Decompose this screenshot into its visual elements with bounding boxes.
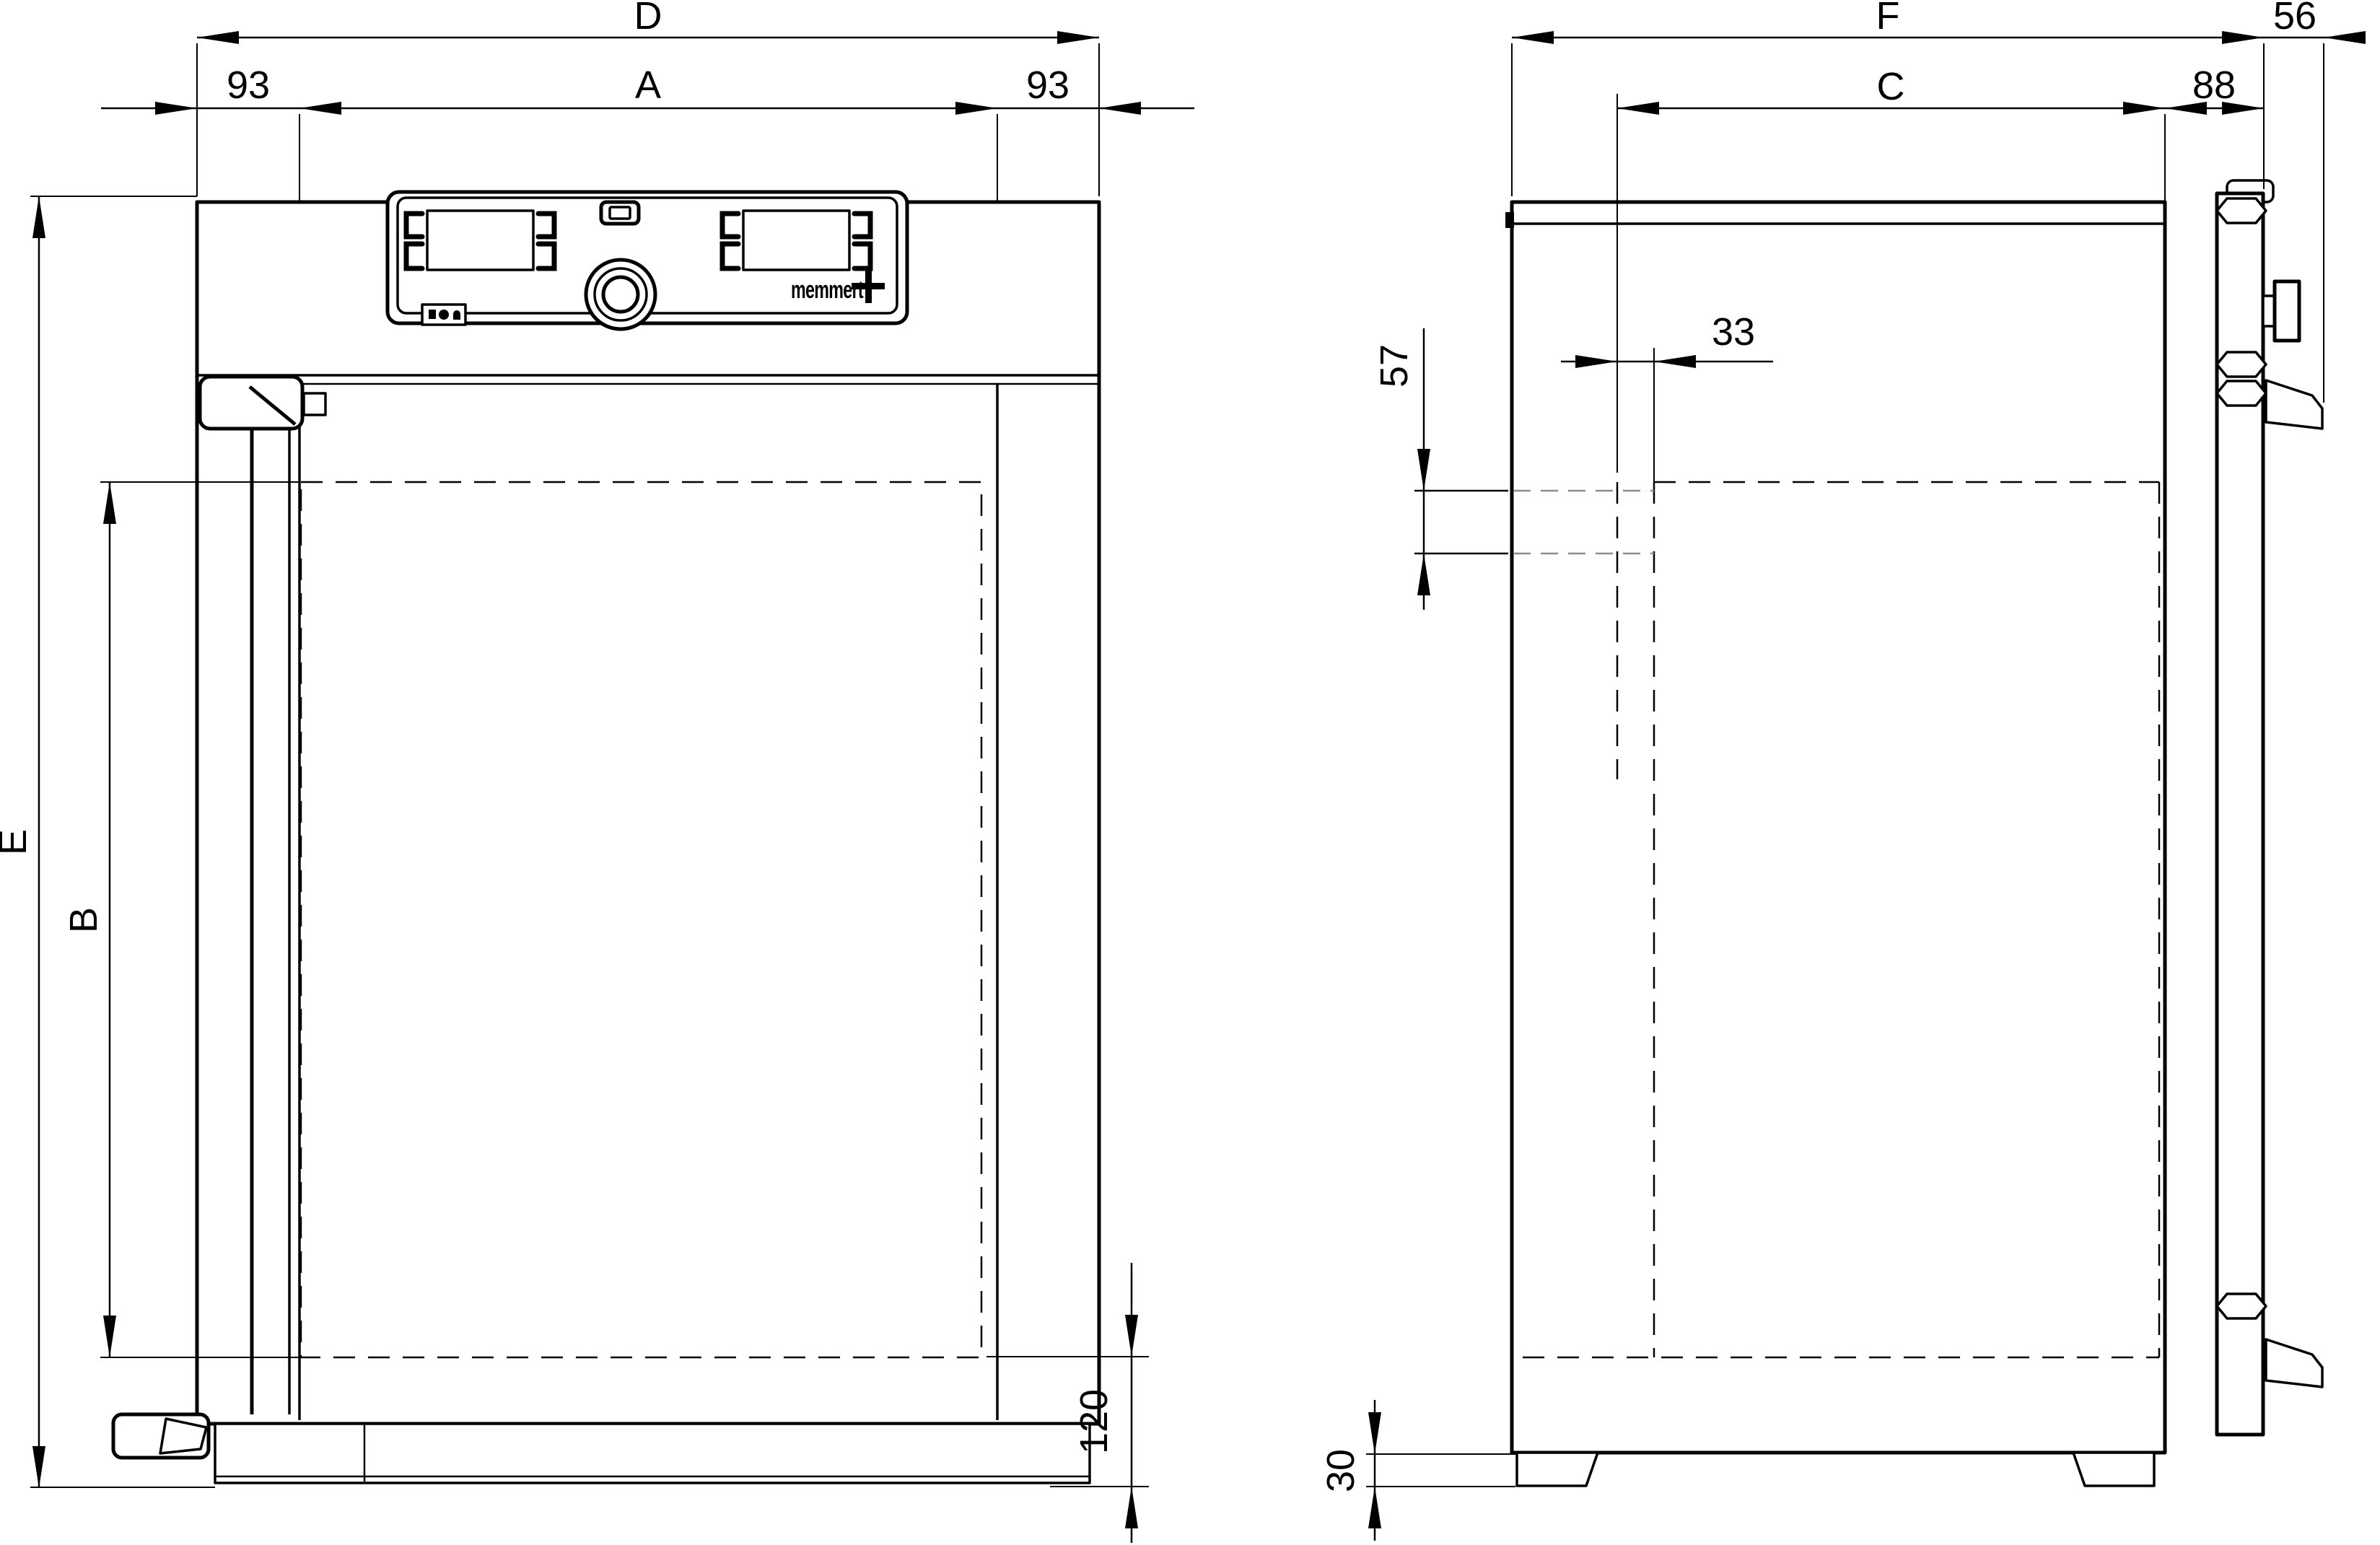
interior-chamber-front-dashed bbox=[301, 482, 981, 1357]
dimension-interior-height-B: B bbox=[62, 482, 299, 1357]
dim-label-30: 30 bbox=[1319, 1449, 1362, 1492]
oven-body-front bbox=[197, 202, 1099, 1424]
dim-label-57: 57 bbox=[1373, 344, 1416, 388]
brand-text: memmert bbox=[791, 276, 863, 304]
dim-label-B: B bbox=[62, 907, 105, 933]
side-view: F 56 C 88 33 57 bbox=[1319, 0, 2366, 1541]
hinge-hex-top bbox=[2217, 198, 2266, 223]
base-plinth bbox=[215, 1424, 1090, 1483]
dimension-base-height-120: 120 bbox=[986, 1263, 1149, 1543]
dimension-top-inset-57: 57 bbox=[1373, 328, 1508, 610]
brand-plus-icon bbox=[852, 283, 885, 289]
dimension-total-height-E: E bbox=[0, 196, 215, 1488]
control-knob bbox=[586, 260, 655, 329]
dimension-door-width-A-with-margins: 93 A 93 bbox=[101, 64, 1194, 202]
hinge-hex bbox=[2217, 352, 2266, 377]
oven-dimension-drawing: memmert D bbox=[0, 0, 2380, 1545]
timer-icon bbox=[439, 310, 449, 320]
display-right bbox=[722, 211, 870, 270]
dim-label-56: 56 bbox=[2273, 0, 2316, 38]
usb-port-icon bbox=[601, 202, 639, 224]
latch-bottom bbox=[2266, 1339, 2322, 1387]
dim-label-D: D bbox=[634, 0, 662, 38]
dim-label-93-right: 93 bbox=[1026, 64, 1069, 107]
door-slab bbox=[2217, 193, 2263, 1435]
setup-icon bbox=[429, 310, 436, 319]
hinge-hex bbox=[2217, 381, 2266, 406]
dim-label-E: E bbox=[0, 829, 35, 855]
dim-label-88: 88 bbox=[2192, 64, 2236, 107]
dimension-interior-depth-C-and-88: C 88 bbox=[1617, 64, 2264, 473]
door-side bbox=[2217, 180, 2322, 1435]
foot-front bbox=[2073, 1453, 2154, 1486]
dimension-feet-height-30: 30 bbox=[1319, 1400, 1515, 1541]
dim-label-120: 120 bbox=[1072, 1389, 1116, 1454]
door-hinge-bottom bbox=[113, 1414, 209, 1458]
foot-back bbox=[1517, 1453, 1598, 1486]
dim-label-93-left: 93 bbox=[227, 64, 270, 107]
lock-icon bbox=[453, 310, 460, 320]
control-panel: memmert bbox=[388, 192, 907, 329]
dimension-back-inset-33: 33 bbox=[1561, 310, 1773, 482]
dim-label-A: A bbox=[635, 64, 661, 107]
rear-panel-clip bbox=[1505, 212, 1514, 228]
front-view: memmert D bbox=[0, 0, 1194, 1543]
status-icons bbox=[422, 305, 465, 325]
dim-label-F: F bbox=[1876, 0, 1900, 38]
display-left bbox=[406, 211, 554, 270]
hinge-hex-bottom bbox=[2217, 1294, 2266, 1318]
door-handle bbox=[2275, 281, 2299, 341]
dim-label-C: C bbox=[1877, 65, 1905, 108]
oven-body-side bbox=[1512, 202, 2165, 1453]
latch-top bbox=[2266, 380, 2322, 429]
dim-label-33: 33 bbox=[1712, 310, 1755, 354]
interior-chamber-side-dashed bbox=[1513, 482, 2159, 1357]
technical-drawing-sheet: memmert D bbox=[0, 0, 2380, 1545]
